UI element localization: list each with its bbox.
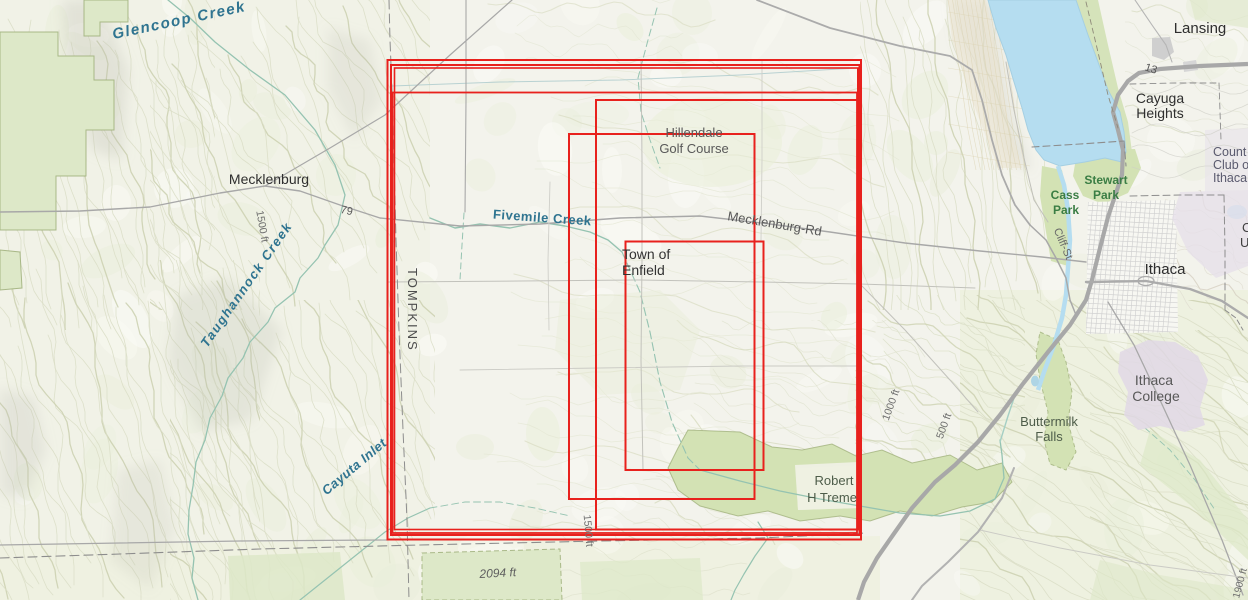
svg-text:Mecklenburg: Mecklenburg <box>229 171 309 187</box>
svg-text:79: 79 <box>339 204 353 218</box>
svg-text:Enfield: Enfield <box>622 262 665 278</box>
svg-text:Un: Un <box>1240 235 1248 250</box>
svg-text:Heights: Heights <box>1136 105 1183 121</box>
svg-text:Count: Count <box>1213 145 1247 159</box>
svg-text:Golf Course: Golf Course <box>659 141 728 156</box>
svg-text:Stewart: Stewart <box>1084 173 1127 187</box>
svg-text:Cass: Cass <box>1051 188 1080 202</box>
svg-text:H Treme: H Treme <box>807 490 857 505</box>
svg-text:Club o: Club o <box>1213 158 1248 172</box>
svg-text:TOMPKINS: TOMPKINS <box>405 268 420 352</box>
svg-text:Buttermilk: Buttermilk <box>1020 414 1078 429</box>
svg-text:Hillendale: Hillendale <box>665 125 722 140</box>
svg-text:Falls: Falls <box>1035 429 1063 444</box>
svg-text:Robert: Robert <box>814 473 853 488</box>
svg-text:Town of: Town of <box>622 246 670 262</box>
svg-text:Ithaca: Ithaca <box>1135 372 1173 388</box>
svg-text:Park: Park <box>1053 203 1079 217</box>
svg-text:Cayuga: Cayuga <box>1136 90 1184 106</box>
svg-text:2094 ft: 2094 ft <box>478 565 517 581</box>
svg-text:Park: Park <box>1093 188 1119 202</box>
svg-text:College: College <box>1132 388 1180 404</box>
svg-text:Ithaca: Ithaca <box>1145 261 1187 278</box>
svg-text:Lansing: Lansing <box>1174 20 1227 37</box>
svg-text:Co: Co <box>1242 220 1248 235</box>
svg-text:Ithaca: Ithaca <box>1213 171 1247 185</box>
